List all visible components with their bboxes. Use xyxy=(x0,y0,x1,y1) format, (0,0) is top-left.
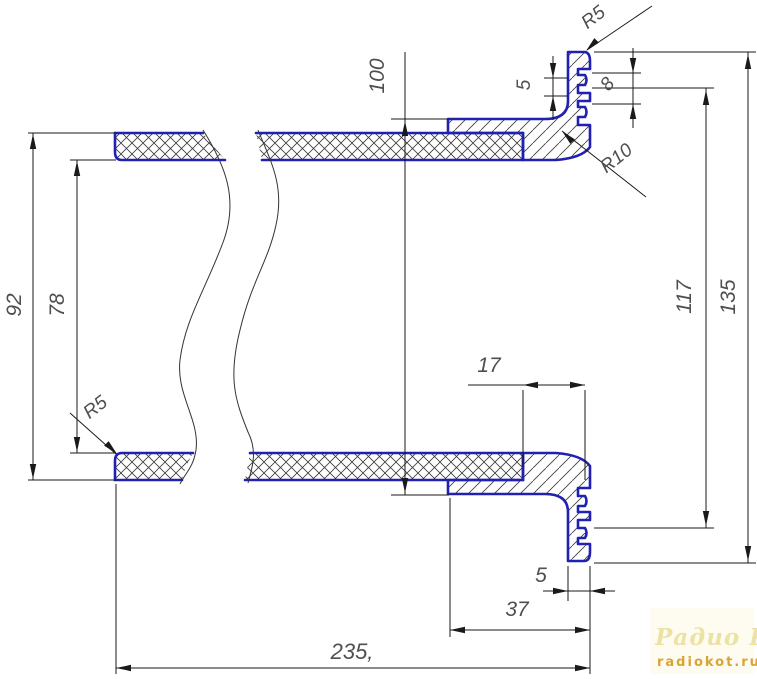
dim-inner-diameter-label: 78 xyxy=(46,293,69,317)
break-line-right xyxy=(234,130,279,483)
tube-top-wall-left xyxy=(115,133,225,160)
watermark-title: Радио КОТ xyxy=(654,624,757,651)
dimension-lines xyxy=(28,6,756,674)
tube-cross-section xyxy=(115,133,523,480)
tube-outline-edges xyxy=(115,133,523,480)
dim-overall-length-label: 235, xyxy=(330,639,374,664)
radius-r5-bottom-label: R5 xyxy=(80,392,112,424)
dim-groove-diameter-label: 117 xyxy=(673,279,696,314)
flanged-tube-section-drawing: 92 78 100 5 8 117 135 R5 R10 R5 17 5 37 … xyxy=(0,0,757,679)
dim-rim-thickness-label: 5 xyxy=(535,564,547,587)
tube-top-wall-right xyxy=(256,133,523,160)
dim-tube-end-label: 17 xyxy=(477,354,502,377)
break-lines xyxy=(180,130,279,484)
watermark: Радио КОТ radiokot.ru xyxy=(650,608,757,674)
break-line-left xyxy=(180,130,230,484)
technical-drawing-page: 92 78 100 5 8 117 135 R5 R10 R5 17 5 37 … xyxy=(0,0,757,679)
collar-flange-cross-section xyxy=(448,52,590,561)
dim-flange-diameter-label: 135 xyxy=(717,279,740,314)
dim-lip-offset-label: 5 xyxy=(514,79,535,90)
tube-bottom-wall-left xyxy=(115,453,193,480)
radius-r10-label: R10 xyxy=(596,139,637,177)
tube-bottom-wall-right xyxy=(245,453,523,480)
watermark-url-link: radiokot.ru xyxy=(657,655,757,670)
dim-collar-length-label: 37 xyxy=(505,598,530,621)
dim-outer-diameter-label: 92 xyxy=(3,293,26,317)
dim-collar-diameter-label: 100 xyxy=(366,58,389,93)
dim-groove-pitch-label: 8 xyxy=(596,73,619,95)
radius-r5-top-label: R5 xyxy=(578,2,610,34)
dimension-labels: 92 78 100 5 8 117 135 R5 R10 R5 17 5 37 … xyxy=(3,2,740,664)
